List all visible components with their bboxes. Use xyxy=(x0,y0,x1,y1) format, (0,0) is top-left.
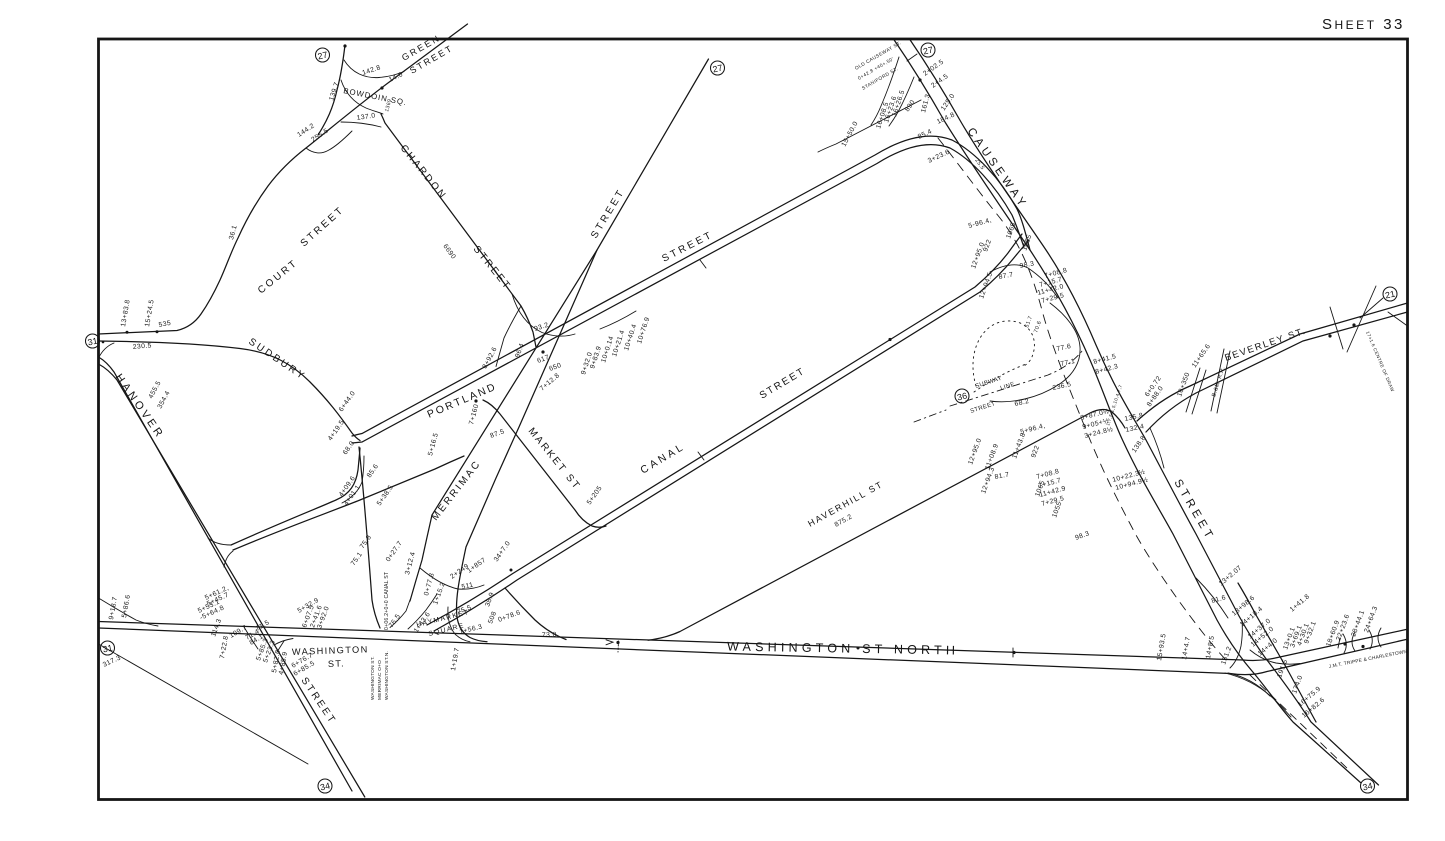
svg-text:ST.: ST. xyxy=(328,658,345,669)
svg-text:MERRIMAC O+O: MERRIMAC O+O xyxy=(377,660,383,700)
svg-text:WASHINGTON ST.N.: WASHINGTON ST.N. xyxy=(384,651,390,700)
svg-text:WASHINGTON ST.: WASHINGTON ST. xyxy=(370,656,376,700)
svg-text:73.0: 73.0 xyxy=(542,631,557,639)
svg-text:0+06.2+0+0 CANAL ST: 0+06.2+0+0 CANAL ST xyxy=(384,571,390,630)
svg-text:SHEET 33: SHEET 33 xyxy=(1322,16,1405,33)
